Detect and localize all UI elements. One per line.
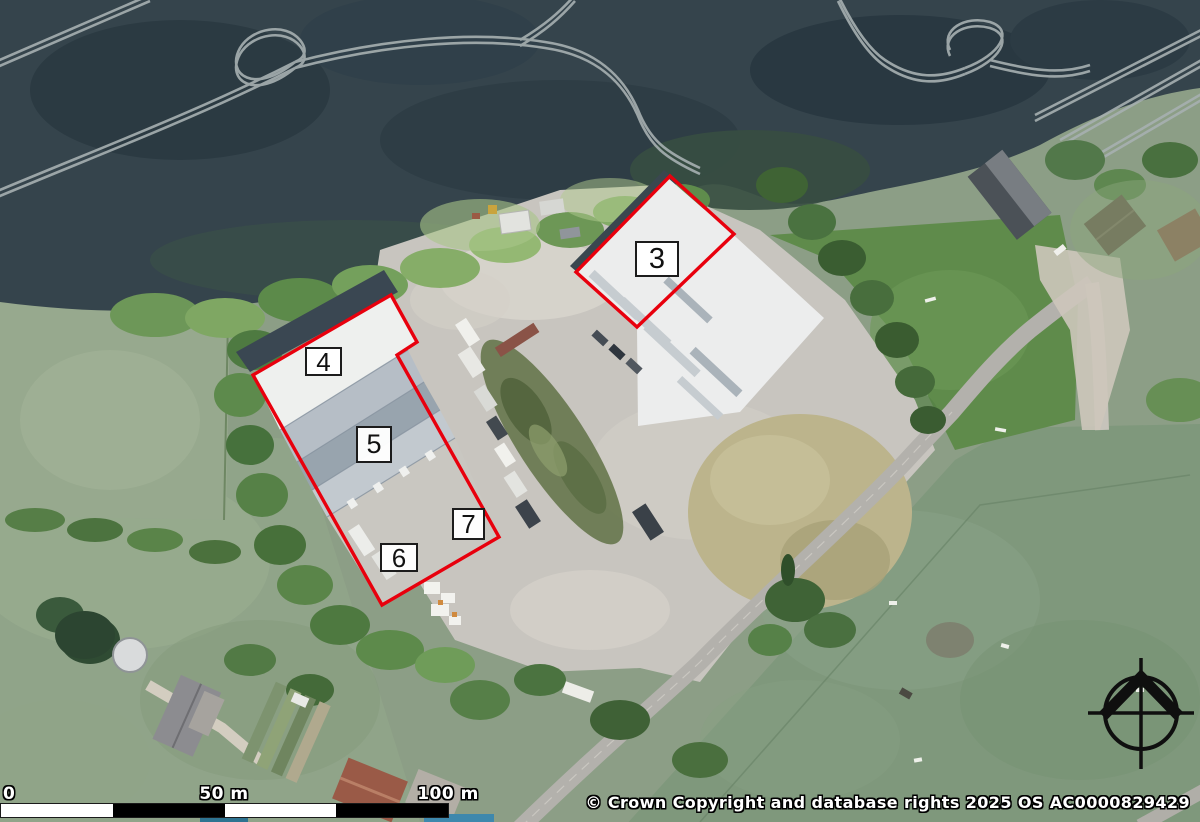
plot-label-7: 7 (452, 508, 485, 540)
plot-label-5: 5 (356, 426, 392, 463)
scale-segment (336, 804, 448, 817)
scale-label-100m: 100 m (417, 784, 479, 804)
scale-bar: 0 50 m 100 m (0, 803, 449, 818)
plot-label-6: 6 (380, 543, 418, 572)
aerial-basemap (0, 0, 1200, 822)
scale-segment (225, 804, 337, 817)
scale-label-50m: 50 m (199, 784, 248, 804)
copyright-notice: © Crown Copyright and database rights 20… (585, 793, 1190, 812)
scale-segment (113, 804, 225, 817)
scale-label-0: 0 (3, 784, 15, 804)
aerial-map-canvas: 3 4 5 6 7 0 50 m 100 m © Crown Copyright… (0, 0, 1200, 822)
scale-segment (1, 804, 113, 817)
plot-label-4: 4 (305, 347, 342, 376)
plot-label-3: 3 (635, 241, 679, 277)
scale-bar-track (0, 803, 449, 818)
